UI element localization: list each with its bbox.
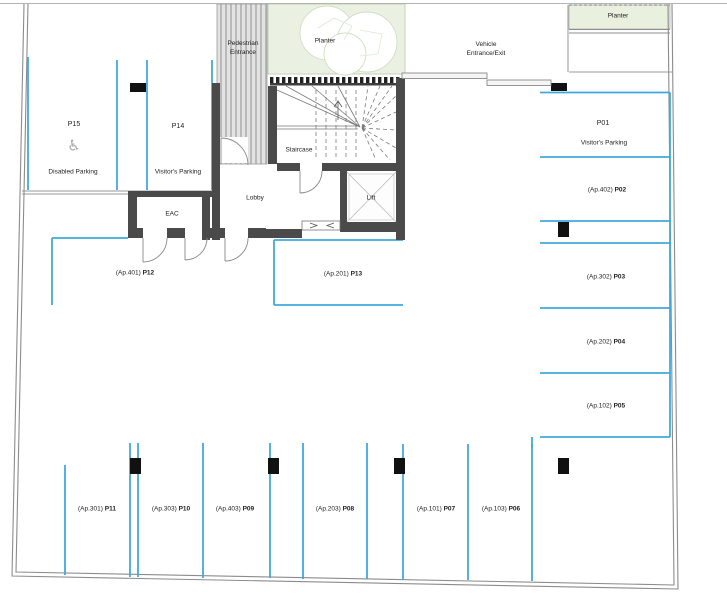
planter-center-area [268,4,405,75]
entrance-threshold-bars [402,73,551,86]
planter-right-area [569,5,670,33]
plan-drawing [0,0,727,612]
vent-grille [302,221,340,230]
pedestrian-entrance-strip [217,4,267,164]
floor-plan: Pedestrian Entrance Planter Vehicle Entr… [0,0,727,612]
stall-lines [28,57,670,581]
lift-cab [347,172,396,222]
columns [130,83,569,474]
staircase-treads [277,86,396,160]
